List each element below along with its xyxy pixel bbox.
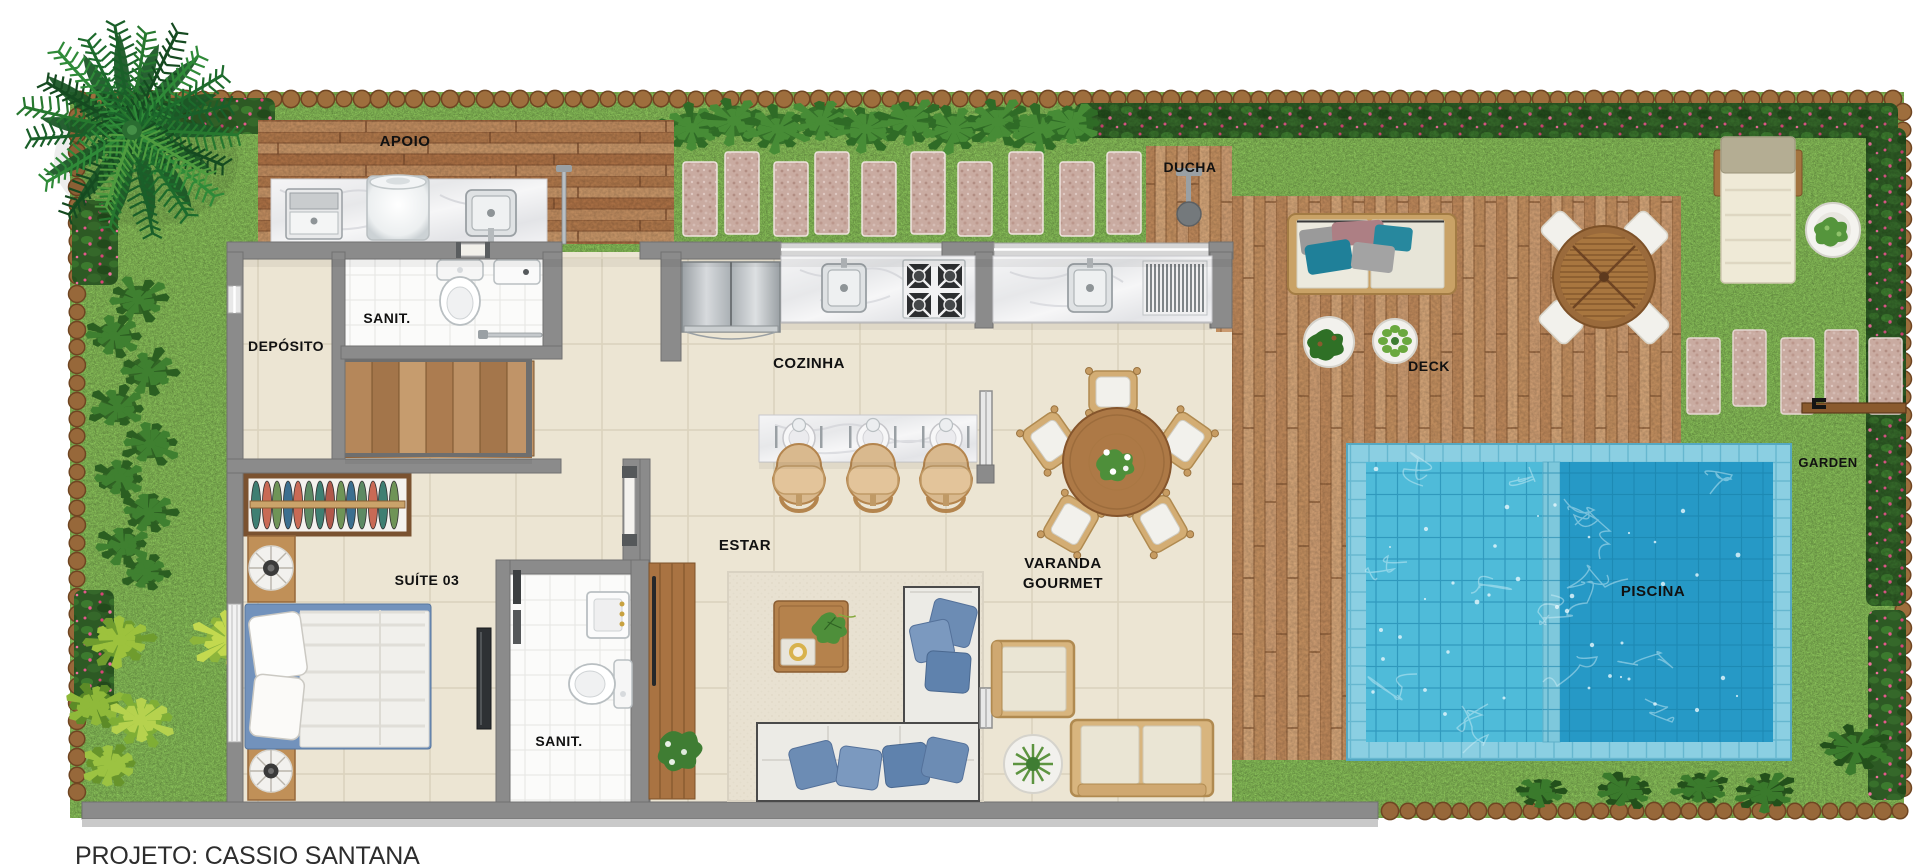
svg-text:APOIO: APOIO (380, 133, 431, 150)
svg-text:GARDEN: GARDEN (1798, 455, 1857, 470)
svg-text:PISCINA: PISCINA (1621, 583, 1685, 600)
svg-text:DEPÓSITO: DEPÓSITO (248, 337, 324, 354)
svg-text:ESTAR: ESTAR (719, 537, 771, 554)
svg-text:VARANDA: VARANDA (1024, 555, 1101, 572)
svg-text:PROJETO: CASSIO SANTANA: PROJETO: CASSIO SANTANA (75, 842, 420, 866)
svg-text:SUÍTE 03: SUÍTE 03 (395, 572, 460, 588)
svg-text:DUCHA: DUCHA (1163, 159, 1216, 175)
svg-text:COZINHA: COZINHA (773, 355, 845, 372)
svg-text:SANIT.: SANIT. (363, 310, 410, 326)
svg-text:DECK: DECK (1408, 358, 1450, 374)
svg-text:SANIT.: SANIT. (535, 733, 582, 749)
svg-text:GOURMET: GOURMET (1023, 575, 1103, 592)
